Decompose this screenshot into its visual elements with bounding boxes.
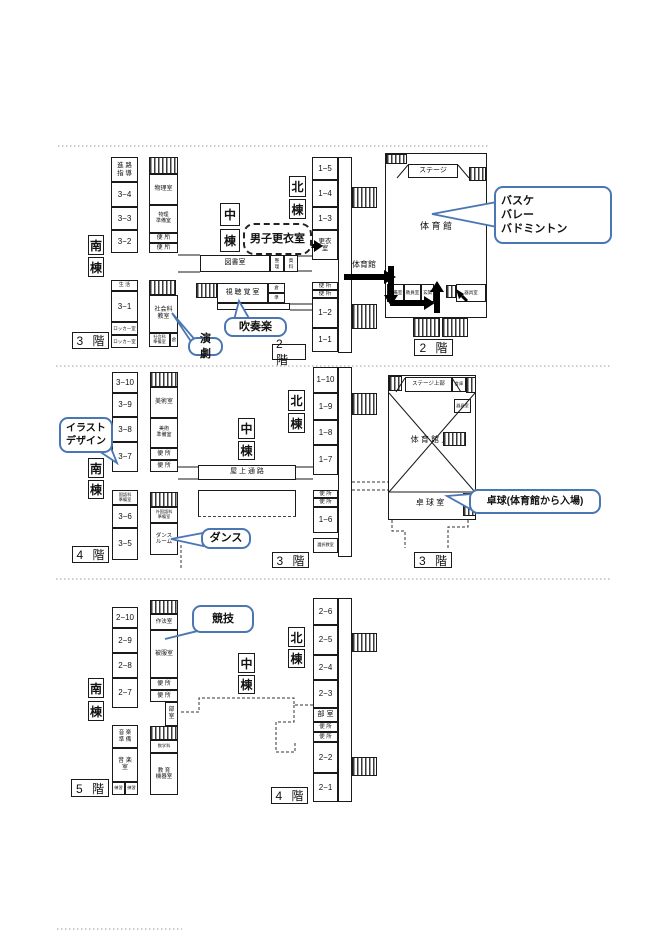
room-bijutsu-junbi: 美術 準備室 bbox=[150, 418, 178, 448]
stairs-icon bbox=[150, 600, 178, 614]
room-soko: 倉庫 bbox=[452, 377, 466, 392]
room-bushitsu: 部 室 bbox=[165, 702, 178, 726]
room-dance-room: ダンス ルーム bbox=[150, 523, 178, 555]
gym-route-label: 体育館 bbox=[344, 260, 384, 271]
room-2-3: 2−3 bbox=[313, 680, 338, 708]
stairs-icon bbox=[352, 304, 377, 329]
room-seiri: 整 理 bbox=[270, 255, 284, 272]
room-renshu: 練習 bbox=[125, 782, 138, 795]
room-1-1: 1−1 bbox=[312, 328, 338, 352]
stairs-icon bbox=[196, 283, 217, 298]
room-2-5: 2−5 bbox=[313, 625, 338, 655]
building-north-char: 北 bbox=[288, 627, 305, 647]
room-benjo: 便 所 bbox=[150, 690, 178, 702]
building-north-char: 北 bbox=[288, 390, 305, 411]
room-benjo: 便 所 bbox=[312, 290, 338, 298]
callout-danshi-koishitsu: 男子更衣室 bbox=[243, 223, 312, 255]
rooftop-deck bbox=[198, 490, 296, 517]
building-north-char: 棟 bbox=[288, 413, 305, 433]
room-bijutsu: 美術室 bbox=[150, 387, 178, 418]
stairs-icon bbox=[149, 157, 178, 174]
building-south-char: 棟 bbox=[88, 257, 104, 277]
building-south-char: 南 bbox=[88, 235, 104, 255]
stairs-icon bbox=[446, 285, 456, 298]
callout-gym-sports: バスケ バレー バドミントン bbox=[494, 186, 612, 244]
room-shakaika-junbi: 社会科 準備室 bbox=[149, 333, 170, 347]
room-sentaku: 選択教室 bbox=[313, 538, 338, 553]
room-kyoin: 教員室 bbox=[404, 284, 421, 302]
callout-illust-design: イラスト デザイン bbox=[59, 417, 113, 453]
room-tosho: 図書室 bbox=[200, 255, 270, 272]
building-center-char: 中 bbox=[238, 418, 255, 439]
room-jun: 準 bbox=[268, 293, 285, 303]
building-south-char: 棟 bbox=[88, 701, 104, 721]
room-sugakuka: 数学科 bbox=[150, 740, 178, 753]
room-2-2: 2−2 bbox=[313, 742, 338, 773]
stairs-icon bbox=[352, 393, 377, 415]
room-gaikokugo-junbi: 外国語科 準備室 bbox=[150, 507, 178, 523]
stairs-icon bbox=[150, 726, 178, 740]
room-2-7: 2−7 bbox=[112, 678, 138, 708]
room-1-8: 1−8 bbox=[313, 420, 338, 445]
building-south-char: 棟 bbox=[88, 480, 104, 499]
callout-suisogaku: 吹奏楽 bbox=[224, 317, 287, 337]
stairs-icon bbox=[352, 187, 377, 208]
building-center-char: 中 bbox=[238, 653, 255, 673]
stairs-icon bbox=[389, 376, 402, 391]
stairs-icon bbox=[466, 377, 476, 393]
stairs-icon bbox=[443, 432, 466, 446]
floor-label-center: 3 階 bbox=[272, 552, 309, 568]
room-2-6: 2−6 bbox=[313, 598, 338, 625]
room-kigu: 器具室 bbox=[456, 284, 486, 302]
room-koi: 更衣 室 bbox=[312, 230, 338, 260]
building-north-char: 棟 bbox=[289, 199, 306, 219]
room-1-5: 1−5 bbox=[312, 157, 338, 180]
room-junbi: 準備室 bbox=[387, 284, 404, 302]
floor-label-gym: 3 階 bbox=[414, 552, 452, 568]
building-center-char: 中 bbox=[220, 203, 240, 226]
callout-takkyu: 卓球(体育館から入場) bbox=[469, 489, 601, 514]
stairs-icon bbox=[413, 318, 440, 337]
building-north-char: 棟 bbox=[288, 649, 305, 668]
stairs-icon bbox=[386, 154, 407, 164]
room-3-5: 3−5 bbox=[112, 528, 138, 560]
room-3-1: 3−1 bbox=[111, 291, 138, 322]
room-locker: ロッカー室 bbox=[111, 335, 138, 348]
room-benjo: 便 所 bbox=[150, 448, 178, 460]
room-3-10: 3−10 bbox=[112, 372, 138, 393]
room-2-8: 2−8 bbox=[112, 653, 138, 678]
room-shakaika: 社会科 教室 bbox=[149, 295, 178, 333]
stairs-icon bbox=[469, 167, 486, 181]
room-3-2: 3−2 bbox=[111, 230, 138, 253]
gym-name: 体 育 館 bbox=[400, 218, 472, 236]
stairs-icon bbox=[149, 280, 176, 295]
stairs-icon bbox=[352, 633, 377, 652]
building-center-char: 棟 bbox=[238, 675, 255, 694]
gym-stage-upper: ステージ上部 bbox=[405, 377, 452, 392]
room-1-4: 1−4 bbox=[312, 180, 338, 207]
room-kokugo-junbi: 国語科 準備室 bbox=[112, 490, 138, 505]
room-benjo: 便 所 bbox=[313, 498, 338, 507]
rooftop-passage: 屋 上 通 路 bbox=[198, 465, 296, 480]
room-benjo: 便 所 bbox=[150, 460, 178, 472]
room-3-9: 3−9 bbox=[112, 393, 138, 417]
room-3-3: 3−3 bbox=[111, 207, 138, 230]
room-benjo: 便 所 bbox=[313, 722, 338, 732]
room-butsuri-junbi: 物理 準備室 bbox=[149, 205, 178, 233]
floor-label-center: 2 階 bbox=[272, 344, 306, 360]
room-ongaku-junbi: 音 楽 準 備 bbox=[112, 725, 138, 748]
room-1-7: 1−7 bbox=[313, 445, 338, 475]
callout-engeki: 演劇 bbox=[188, 337, 223, 356]
floor-label-south: 4 階 bbox=[72, 546, 109, 563]
room-bushitsu: 部 室 bbox=[313, 708, 338, 722]
room-3-8: 3−8 bbox=[112, 417, 138, 442]
takkyu-room-label: 卓 球 室 bbox=[396, 495, 464, 511]
callout-kyogi: 競技 bbox=[192, 605, 254, 633]
room-3-6: 3−6 bbox=[112, 505, 138, 528]
room-hifuku: 被服室 bbox=[150, 630, 178, 678]
room-2-4: 2−4 bbox=[313, 655, 338, 680]
stairs-icon bbox=[442, 318, 468, 337]
floor-label-gym: 2 階 bbox=[414, 339, 453, 356]
room-renshu: 練習 bbox=[112, 782, 125, 795]
room-benjo: 便 所 bbox=[312, 282, 338, 290]
room-kura: 倉 bbox=[170, 333, 178, 347]
north-corridor bbox=[338, 157, 352, 353]
building-north-char: 北 bbox=[289, 176, 306, 197]
callout-dance: ダンス bbox=[201, 528, 251, 549]
building-center-char: 棟 bbox=[238, 441, 255, 460]
room-2-1: 2−1 bbox=[313, 773, 338, 802]
room-saho: 作法室 bbox=[150, 614, 178, 630]
floor-label-north: 4 階 bbox=[271, 787, 308, 804]
room-2-10: 2−10 bbox=[112, 607, 138, 628]
room-benjo: 便 所 bbox=[313, 490, 338, 498]
room-1-2: 1−2 bbox=[312, 298, 338, 328]
room-shinro-shido: 進 路 指 導 bbox=[111, 157, 138, 182]
stairs-icon bbox=[150, 492, 178, 507]
room-shiryo: 資 料 bbox=[284, 255, 298, 272]
room-benjo: 便 所 bbox=[149, 243, 178, 253]
room-1-10: 1−10 bbox=[313, 367, 338, 393]
building-south-char: 南 bbox=[88, 678, 104, 698]
room-benjo: 便 所 bbox=[150, 678, 178, 690]
room-kigu: 器具室 bbox=[454, 399, 471, 413]
room-1-9: 1−9 bbox=[313, 393, 338, 420]
room-benjo: 便 所 bbox=[149, 233, 178, 243]
room-seikatsu: 生 活 bbox=[111, 280, 138, 291]
gym-stage: ステージ bbox=[408, 164, 458, 178]
school-floorplan-page: 南棟3 階進 路 指 導3−43−33−2生 活3−1ロッカー室ロッカー室物理室… bbox=[0, 0, 660, 934]
north-corridor bbox=[338, 598, 352, 802]
room-kyoiku-kiki: 教 育 機器室 bbox=[150, 753, 178, 795]
corridor-strip bbox=[217, 303, 290, 310]
room-3-4: 3−4 bbox=[111, 182, 138, 207]
room-kura: 倉 bbox=[268, 283, 285, 293]
room-locker: ロッカー室 bbox=[111, 322, 138, 335]
room-1-3: 1−3 bbox=[312, 207, 338, 230]
room-butsuri: 物理室 bbox=[149, 174, 178, 205]
stairs-icon bbox=[352, 757, 377, 776]
building-south-char: 南 bbox=[88, 458, 104, 478]
floor-label-south: 5 階 bbox=[71, 779, 109, 797]
room-genkan: 玄関 bbox=[421, 284, 434, 302]
stairs-icon bbox=[150, 372, 178, 387]
room-3-7: 3−7 bbox=[112, 442, 138, 472]
north-corridor bbox=[338, 367, 352, 557]
building-center-char: 棟 bbox=[220, 229, 240, 252]
room-2-9: 2−9 bbox=[112, 628, 138, 653]
room-shichokaku: 視 聴 覚 室 bbox=[217, 283, 268, 303]
room-benjo: 便 所 bbox=[313, 732, 338, 742]
floor-label-south: 3 階 bbox=[72, 332, 109, 349]
room-ongaku: 音 楽 室 bbox=[112, 748, 138, 782]
room-1-6: 1−6 bbox=[313, 507, 338, 533]
